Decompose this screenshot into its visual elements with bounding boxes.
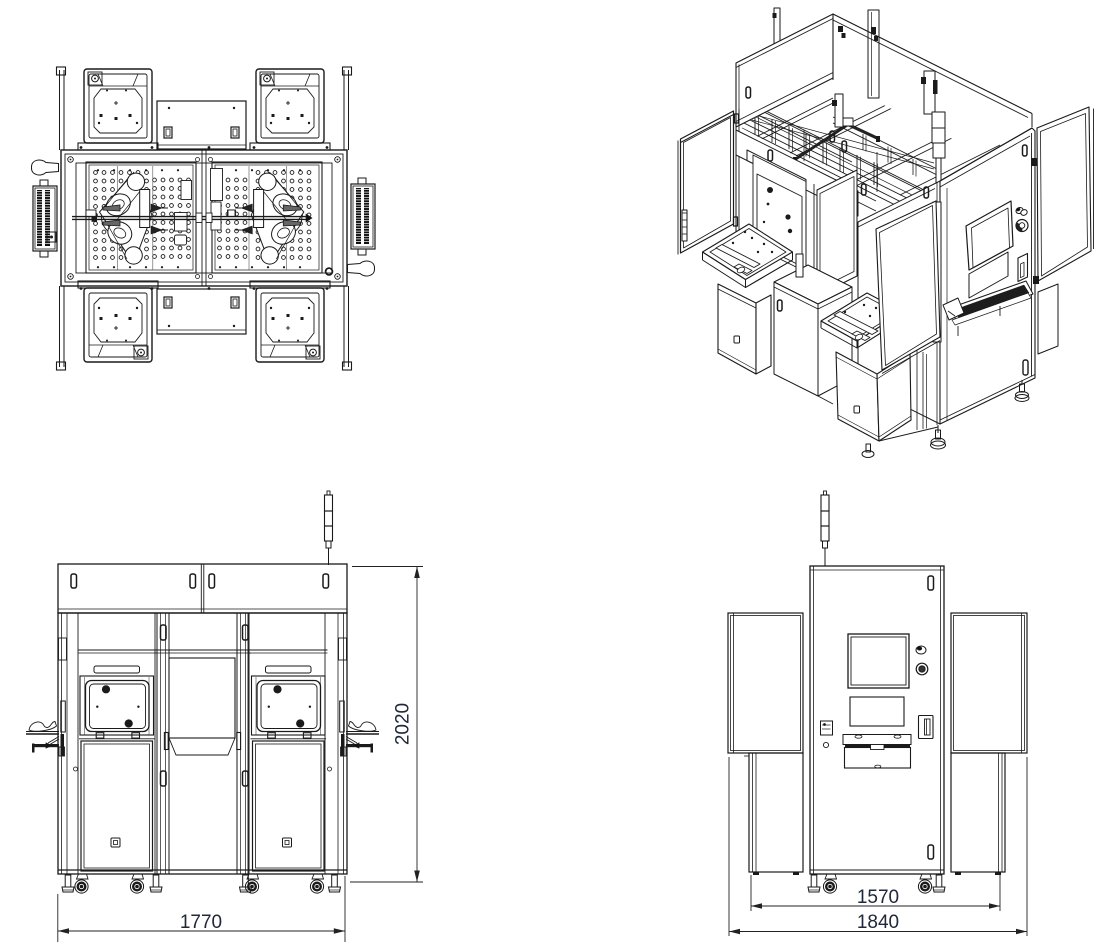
svg-text:1840: 1840 [857,912,899,933]
svg-text:2020: 2020 [393,703,414,745]
svg-text:1570: 1570 [857,887,899,908]
svg-text:1770: 1770 [180,912,222,933]
